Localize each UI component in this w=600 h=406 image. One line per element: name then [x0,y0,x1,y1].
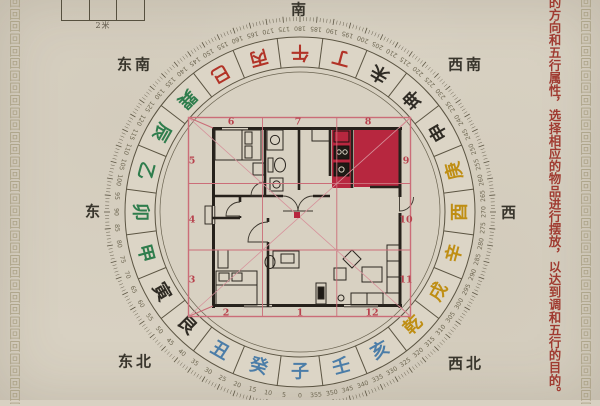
palace-number-10: 10 [399,215,413,226]
svg-text:140: 140 [175,65,189,78]
svg-text:320: 320 [411,346,425,359]
svg-text:175: 175 [278,25,290,33]
svg-text:245: 245 [461,127,472,141]
svg-text:295: 295 [461,283,472,297]
palace-number-12: 12 [365,308,378,319]
svg-text:55: 55 [144,312,154,323]
svg-text:105: 105 [117,158,127,171]
svg-text:290: 290 [468,268,479,282]
label-southwest: 西南 [448,54,484,75]
center-dot [294,212,300,218]
svg-text:250: 250 [468,142,479,156]
mountain-子: 子 [291,362,309,383]
svg-text:65: 65 [128,285,138,295]
svg-text:165: 165 [246,29,259,39]
svg-text:240: 240 [453,113,465,127]
svg-text:35: 35 [189,358,200,368]
svg-text:10: 10 [264,389,273,397]
palace-number-2: 2 [223,308,230,319]
svg-text:50: 50 [154,325,164,336]
svg-text:210: 210 [385,47,399,59]
svg-text:260: 260 [477,174,486,187]
svg-text:270: 270 [481,206,488,218]
svg-text:330: 330 [385,365,399,377]
palace-number-5: 5 [189,156,196,167]
svg-text:125: 125 [143,100,156,114]
svg-text:25: 25 [217,374,227,384]
palace-number-8: 8 [365,117,372,128]
svg-text:185: 185 [310,25,322,33]
mountain-酉: 酉 [450,203,471,221]
mountain-午: 午 [291,42,309,64]
svg-text:0: 0 [298,393,302,400]
svg-text:275: 275 [479,222,487,234]
svg-text:155: 155 [215,40,229,51]
svg-text:300: 300 [453,297,465,311]
tv-icon [318,287,324,299]
kitchen-sink-icon [334,163,349,176]
palace-number-9: 9 [403,156,410,167]
svg-text:80: 80 [115,239,123,248]
svg-text:195: 195 [341,29,354,39]
palace-number-11: 11 [399,275,412,286]
svg-text:355: 355 [310,391,322,399]
palace-number-3: 3 [189,275,196,286]
svg-text:100: 100 [114,174,123,187]
svg-text:340: 340 [356,380,370,391]
svg-text:350: 350 [326,389,339,398]
svg-text:220: 220 [411,65,425,78]
svg-text:255: 255 [473,158,483,171]
palace-number-4: 4 [189,215,196,226]
svg-text:40: 40 [176,348,187,358]
svg-text:30: 30 [203,366,213,376]
palace-number-1: 1 [297,308,304,319]
svg-text:150: 150 [201,47,215,59]
svg-text:235: 235 [444,100,457,114]
svg-text:110: 110 [122,142,133,156]
svg-text:45: 45 [165,337,176,348]
label-northeast: 东北 [118,351,154,372]
label-east: 东 [85,201,103,222]
svg-text:160: 160 [230,34,244,45]
svg-text:280: 280 [477,237,486,250]
svg-text:130: 130 [153,87,166,101]
svg-text:145: 145 [188,55,202,68]
svg-text:215: 215 [399,55,413,68]
svg-text:200: 200 [356,34,370,45]
svg-text:190: 190 [325,26,338,35]
vertical-annotation-text: 的方向和五行属性，选择相应的物品进行摆放，以达到调和五行的目的。 [545,0,564,406]
svg-text:75: 75 [118,255,127,264]
svg-text:230: 230 [434,87,447,101]
svg-text:180: 180 [294,25,306,32]
kitchen-room-highlight [354,129,399,187]
svg-text:310: 310 [434,323,447,337]
palace-number-6: 6 [228,117,235,128]
svg-text:20: 20 [232,380,242,389]
svg-text:305: 305 [444,311,457,325]
label-west: 西 [501,202,519,223]
mountain-卯: 卯 [130,203,151,221]
svg-text:205: 205 [371,40,385,51]
label-northwest: 西北 [448,353,484,374]
svg-text:170: 170 [262,26,275,35]
svg-text:115: 115 [128,127,139,141]
svg-text:15: 15 [248,385,257,394]
svg-text:60: 60 [136,299,146,309]
compass-ring: 子癸丑艮寅甲卯乙辰巽巳丙午丁未坤申庚酉辛戌乾亥壬0510152025303540… [104,16,496,400]
svg-text:325: 325 [399,356,413,369]
svg-text:95: 95 [113,192,121,201]
svg-text:285: 285 [473,253,483,266]
label-southeast: 东南 [117,54,153,75]
svg-text:5: 5 [282,392,287,399]
svg-text:70: 70 [122,270,131,280]
svg-text:265: 265 [479,190,487,202]
svg-text:120: 120 [135,113,147,127]
label-south: 南 [291,0,309,20]
svg-text:345: 345 [341,385,354,395]
svg-text:90: 90 [113,208,120,216]
palace-number-7: 7 [295,117,302,128]
svg-text:335: 335 [371,373,385,384]
svg-text:85: 85 [113,224,121,233]
